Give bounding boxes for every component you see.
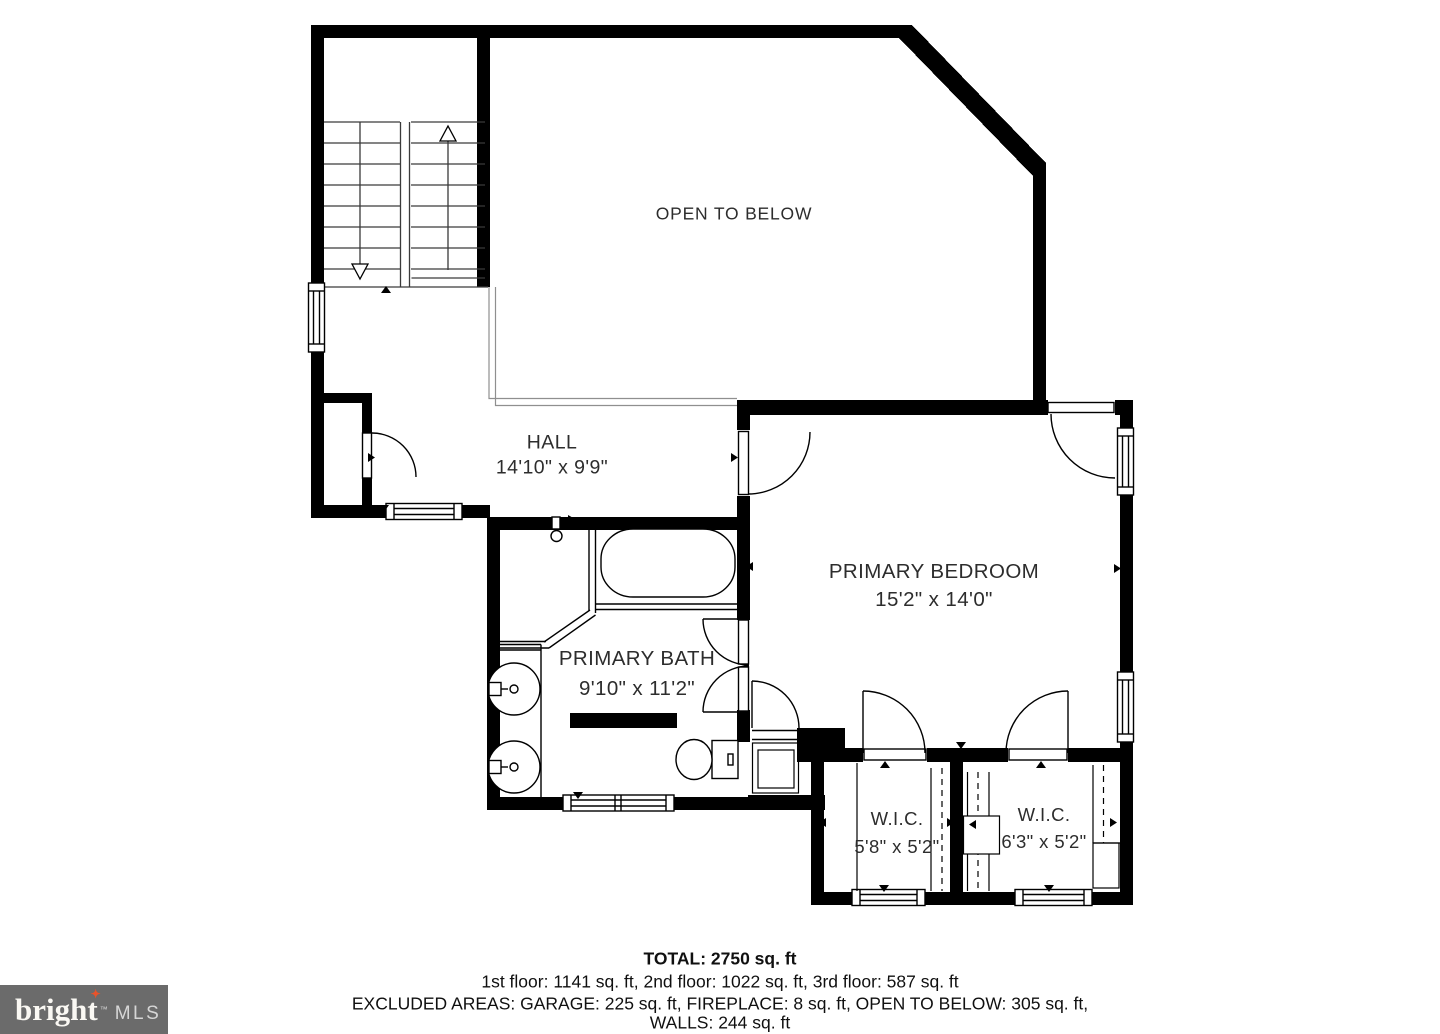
window-wic-left bbox=[852, 890, 925, 906]
wall-closet-right-upper bbox=[362, 403, 372, 435]
door-wic-right bbox=[1006, 691, 1068, 760]
linen-closet-shelf bbox=[753, 743, 799, 793]
wall-bath-bedroom-lower bbox=[737, 710, 750, 742]
wall-open-below-right bbox=[1033, 163, 1046, 405]
marker-bedroom-bottom bbox=[956, 742, 966, 749]
room-label-wic-right: W.I.C. bbox=[1018, 804, 1071, 826]
wall-closet-top bbox=[311, 393, 372, 403]
room-dims-hall: 14'10" x 9'9" bbox=[496, 457, 608, 480]
windows bbox=[309, 283, 1134, 906]
stair-treads bbox=[324, 122, 485, 269]
window-hall-bottom bbox=[386, 504, 462, 520]
toilet-icon bbox=[676, 740, 738, 780]
room-dims-wic-right: 6'3" x 5'2" bbox=[1001, 831, 1086, 853]
marker-wic-right-wall bbox=[1110, 818, 1117, 827]
marker-bedroom-door bbox=[731, 453, 738, 462]
room-dims-primary-bath: 9'10" x 11'2" bbox=[579, 677, 695, 701]
wall-left-exterior bbox=[311, 25, 324, 518]
wall-top bbox=[311, 25, 911, 38]
window-bedroom-upper bbox=[1118, 428, 1134, 495]
brightmls-logo: bright✦ ™ MLS bbox=[0, 985, 168, 1034]
wall-toilet-stub bbox=[570, 713, 677, 728]
spark-icon: ✦ bbox=[91, 988, 101, 1000]
wall-wic-left-exterior bbox=[811, 760, 824, 905]
window-stair-left bbox=[309, 283, 325, 352]
wall-bedroom-top bbox=[737, 400, 1048, 415]
room-label-primary-bath: PRIMARY BATH bbox=[559, 647, 715, 671]
wall-closet-right-lower bbox=[362, 476, 372, 508]
room-dims-wic-left: 5'8" x 5'2" bbox=[854, 836, 939, 858]
summary-total: TOTAL: 2750 sq. ft bbox=[0, 949, 1440, 970]
door-linen-closet bbox=[752, 681, 799, 740]
wall-wic-divider bbox=[950, 762, 963, 905]
wall-bath-top bbox=[487, 517, 750, 530]
marker-bedroom-right bbox=[1114, 564, 1121, 573]
room-dims-primary-bedroom: 15'2" x 14'0" bbox=[875, 588, 993, 612]
floorplan-page: OPEN TO BELOW HALL 14'10" x 9'9" PRIMARY… bbox=[0, 0, 1440, 1034]
wall-linen-corner bbox=[797, 728, 845, 762]
floorplan-drawing bbox=[0, 0, 1440, 1034]
wall-diagonal bbox=[899, 25, 1046, 176]
summary-floors: 1st floor: 1141 sq. ft, 2nd floor: 1022 … bbox=[0, 972, 1440, 993]
window-wic-right bbox=[1015, 890, 1092, 906]
brightmls-logo-brand: bright✦ bbox=[15, 994, 98, 1025]
summary-excluded: EXCLUDED AREAS: GARAGE: 225 sq. ft, FIRE… bbox=[0, 994, 1440, 1015]
open-below-edge bbox=[489, 287, 737, 406]
window-bedroom-lower bbox=[1118, 672, 1134, 742]
trademark-symbol: ™ bbox=[100, 1005, 108, 1014]
marker-wic-right-door bbox=[1036, 761, 1046, 768]
stairs bbox=[324, 122, 488, 287]
brightmls-logo-suffix: MLS bbox=[115, 1003, 162, 1025]
stair-down-arrow bbox=[352, 122, 368, 279]
door-wic-left bbox=[863, 691, 926, 760]
window-bath-bottom bbox=[563, 795, 674, 811]
wall-bath-bedroom-upper bbox=[737, 517, 750, 620]
bathtub bbox=[596, 529, 738, 610]
sink-icon bbox=[488, 663, 540, 715]
sink-icon bbox=[488, 741, 540, 793]
wic-right-fittings bbox=[964, 765, 1121, 891]
room-label-wic-left: W.I.C. bbox=[871, 808, 924, 830]
room-label-open-to-below: OPEN TO BELOW bbox=[656, 204, 813, 225]
marker-wic-left-door bbox=[880, 761, 890, 768]
room-label-hall: HALL bbox=[527, 432, 577, 455]
summary-walls: WALLS: 244 sq. ft bbox=[0, 1013, 1440, 1034]
room-label-primary-bedroom: PRIMARY BEDROOM bbox=[829, 560, 1039, 584]
shower bbox=[500, 515, 596, 648]
